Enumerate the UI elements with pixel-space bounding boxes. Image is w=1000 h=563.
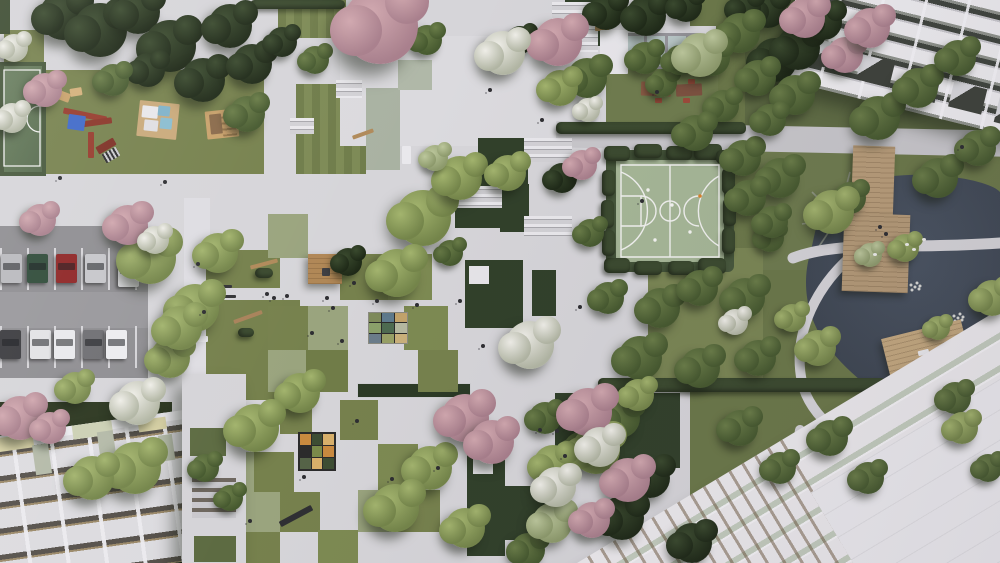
person [884,232,888,236]
hedge [602,170,615,196]
person [538,428,542,432]
grid-tile [312,434,323,445]
hedge [250,0,345,9]
med-tree [898,68,938,108]
bench-white [402,146,411,164]
grid-tile [395,313,407,322]
lawn-square [404,306,448,350]
hedge [634,144,662,158]
person [196,262,200,266]
person [458,299,462,303]
person [655,90,659,94]
person [960,145,964,149]
pink-tree [28,73,62,107]
parked-car [30,330,51,359]
water-bird [905,243,909,246]
light-tree [622,379,654,411]
white-tree [0,34,28,62]
light-tree [373,249,421,297]
parked-car [54,330,75,359]
med-tree [940,40,976,76]
picnic-chair [688,79,695,84]
dark-tree [334,248,362,276]
light-tree [231,404,279,452]
car-windshield [32,339,49,347]
grid-tile [300,434,311,445]
med-tree [677,115,713,151]
dark-tree [672,523,712,563]
med-tree [960,130,996,166]
med-tree [939,382,971,414]
person [488,88,492,92]
light-tree [974,280,1000,316]
hedge [722,228,735,254]
white-tree [576,98,600,122]
pink-tree [470,420,514,464]
lawn-square [254,452,294,494]
hedge [238,328,254,337]
person [390,477,394,481]
person [58,176,62,180]
stairs [336,80,362,98]
car-windshield [58,263,75,271]
person [555,429,559,433]
person [163,180,167,184]
roof-lawn [194,536,236,562]
lawn-square [418,350,458,392]
med-tree [918,158,958,198]
grid-tile [395,323,407,332]
parking-lane [0,292,148,328]
med-tree [756,206,788,238]
grid-tile [369,313,381,322]
grid-tile [323,434,334,445]
person [481,344,485,348]
car-windshield [87,263,104,271]
med-tree [754,104,786,136]
play-tower-red [88,132,94,158]
med-tree [682,270,718,306]
lawn-square [268,214,308,258]
hedge [634,261,662,275]
stairs [290,118,314,134]
med-tree [725,140,761,176]
car-windshield [2,339,19,347]
car-windshield [85,339,102,347]
grid-tile [382,334,394,343]
grid-tile [323,458,334,469]
water-bird [912,248,916,251]
picnic-chair [655,98,662,103]
parked-car [106,330,127,359]
person [248,519,252,523]
light-tree [445,508,485,548]
person [331,306,335,310]
med-tree [640,288,680,328]
dark-tree [208,4,252,48]
person [285,294,289,298]
med-tree [217,485,243,511]
lawn-square [240,492,280,532]
light-tree [810,190,854,234]
hedge [604,146,630,161]
grid-tile [312,458,323,469]
sage-tree [532,503,572,543]
hedge [604,258,630,273]
med-tree [722,410,758,446]
aerial-residential-park-render [0,0,1000,563]
person [340,339,344,343]
med-tree [437,240,463,266]
stairs [524,216,572,236]
deck-table [322,268,330,276]
light-tree [371,484,419,532]
med-tree [974,454,1000,482]
parked-car [0,330,21,359]
playhouse-roof [141,105,158,119]
mosaic-square [368,312,408,344]
med-tree [680,348,720,388]
light-tree [198,233,238,273]
light-tree [946,412,978,444]
fitness-post [224,295,236,298]
hedge [255,268,273,278]
person [272,296,276,300]
picnic-chair [683,98,690,103]
person [202,310,206,314]
play-canopy-blue [67,114,86,131]
med-tree [629,42,661,74]
grid-tile [382,313,394,322]
person [563,454,567,458]
person [352,281,356,285]
person [878,225,882,229]
playhouse-roof-blue [158,105,171,116]
lawn-square [318,530,358,563]
light-tree [926,316,950,340]
car-windshield [3,263,20,271]
med-tree [592,282,624,314]
med-tree [852,462,884,494]
pink-tree [850,8,890,48]
sage-tree [858,243,882,267]
light-tree [280,373,320,413]
grid-tile [382,323,394,332]
car-windshield [56,339,73,347]
dark-lawn-3 [532,270,556,316]
parked-car [1,254,22,283]
light-tree [542,70,578,106]
dark-tree [181,58,225,102]
med-tree [856,96,900,140]
light-tree [395,190,451,246]
lawn-square [244,532,280,563]
pink-tree [34,412,66,444]
grid-tile [300,446,311,457]
parked-car [56,254,77,283]
playhouse-roof [143,119,158,131]
med-tree [812,420,848,456]
pink-tree [24,204,56,236]
pink-tree [567,150,597,180]
water-bird [922,238,926,241]
climbing-cube [298,432,336,471]
roof-lawn [190,428,226,456]
person [375,299,379,303]
person [325,296,329,300]
lawn-square [340,400,378,440]
grid-tile [323,446,334,457]
car-windshield [29,263,46,271]
white-tree [506,321,554,369]
med-tree [229,96,265,132]
person [355,419,359,423]
person [436,466,440,470]
light-tree [59,372,91,404]
person [640,199,644,203]
lawn-square [268,306,308,350]
person [415,303,419,307]
hedge-left-edge [0,0,10,34]
pale-square-top [398,60,432,90]
parked-car [83,330,104,359]
med-tree [740,340,776,376]
parked-car [27,254,48,283]
white-tree [580,427,620,467]
med-tree [764,452,796,484]
med-tree [301,46,329,74]
pink-tree [606,458,650,502]
person [302,475,306,479]
grid-tile [300,458,311,469]
light-tree [778,304,806,332]
white-inset-2 [469,266,489,284]
court-inner [616,160,724,262]
dark-tree [267,27,297,57]
white-tree [141,226,169,254]
person [310,331,314,335]
grid-tile [395,334,407,343]
person [265,292,269,296]
light-tree [490,155,526,191]
sage-tree [422,145,448,171]
grid-tile [312,446,323,457]
picnic-table [676,83,703,96]
white-tree [536,467,576,507]
car-windshield [108,339,125,347]
grid-tile [369,323,381,332]
pink-tree [574,502,610,538]
sage-tree [678,33,722,77]
grid-tile [369,334,381,343]
pink-tree [534,18,582,66]
parked-car [85,254,106,283]
light-tree [800,330,836,366]
med-tree [97,64,129,96]
white-tree [481,31,525,75]
person [540,118,544,122]
med-tree [576,219,604,247]
water-bird [873,253,877,256]
lawn-square [308,306,348,350]
person [578,305,582,309]
med-tree [191,454,219,482]
light-tree [70,456,114,500]
dark-tree [131,53,165,87]
playhouse-roof-blue [159,117,172,129]
white-tree [116,381,160,425]
med-tree [618,336,662,380]
light-tree [158,306,202,350]
white-tree [722,309,748,335]
